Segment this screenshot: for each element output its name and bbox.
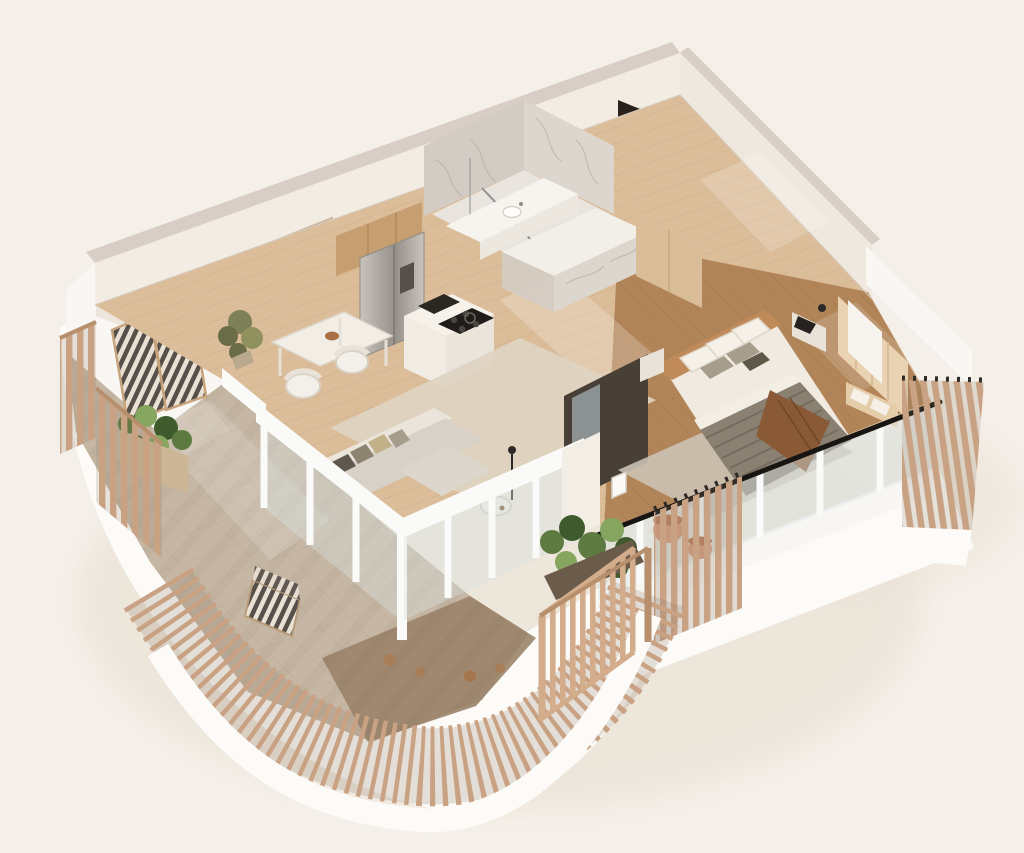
floor-lamp-head — [508, 446, 516, 454]
faucet — [519, 202, 523, 206]
fruit-bowl — [325, 332, 339, 341]
burner — [451, 317, 457, 323]
dining-chair — [286, 374, 320, 398]
slat-fence-right-wing — [902, 380, 984, 530]
floor-plan-render — [0, 0, 1024, 853]
slat-fence-left-1 — [60, 322, 96, 454]
apartment-render-stage — [0, 0, 1024, 853]
dining-chair — [336, 351, 368, 373]
vanity-sink — [503, 207, 521, 218]
burner — [459, 326, 465, 332]
slab-under-right-fence — [902, 527, 972, 566]
bedside-lamp — [818, 304, 826, 312]
